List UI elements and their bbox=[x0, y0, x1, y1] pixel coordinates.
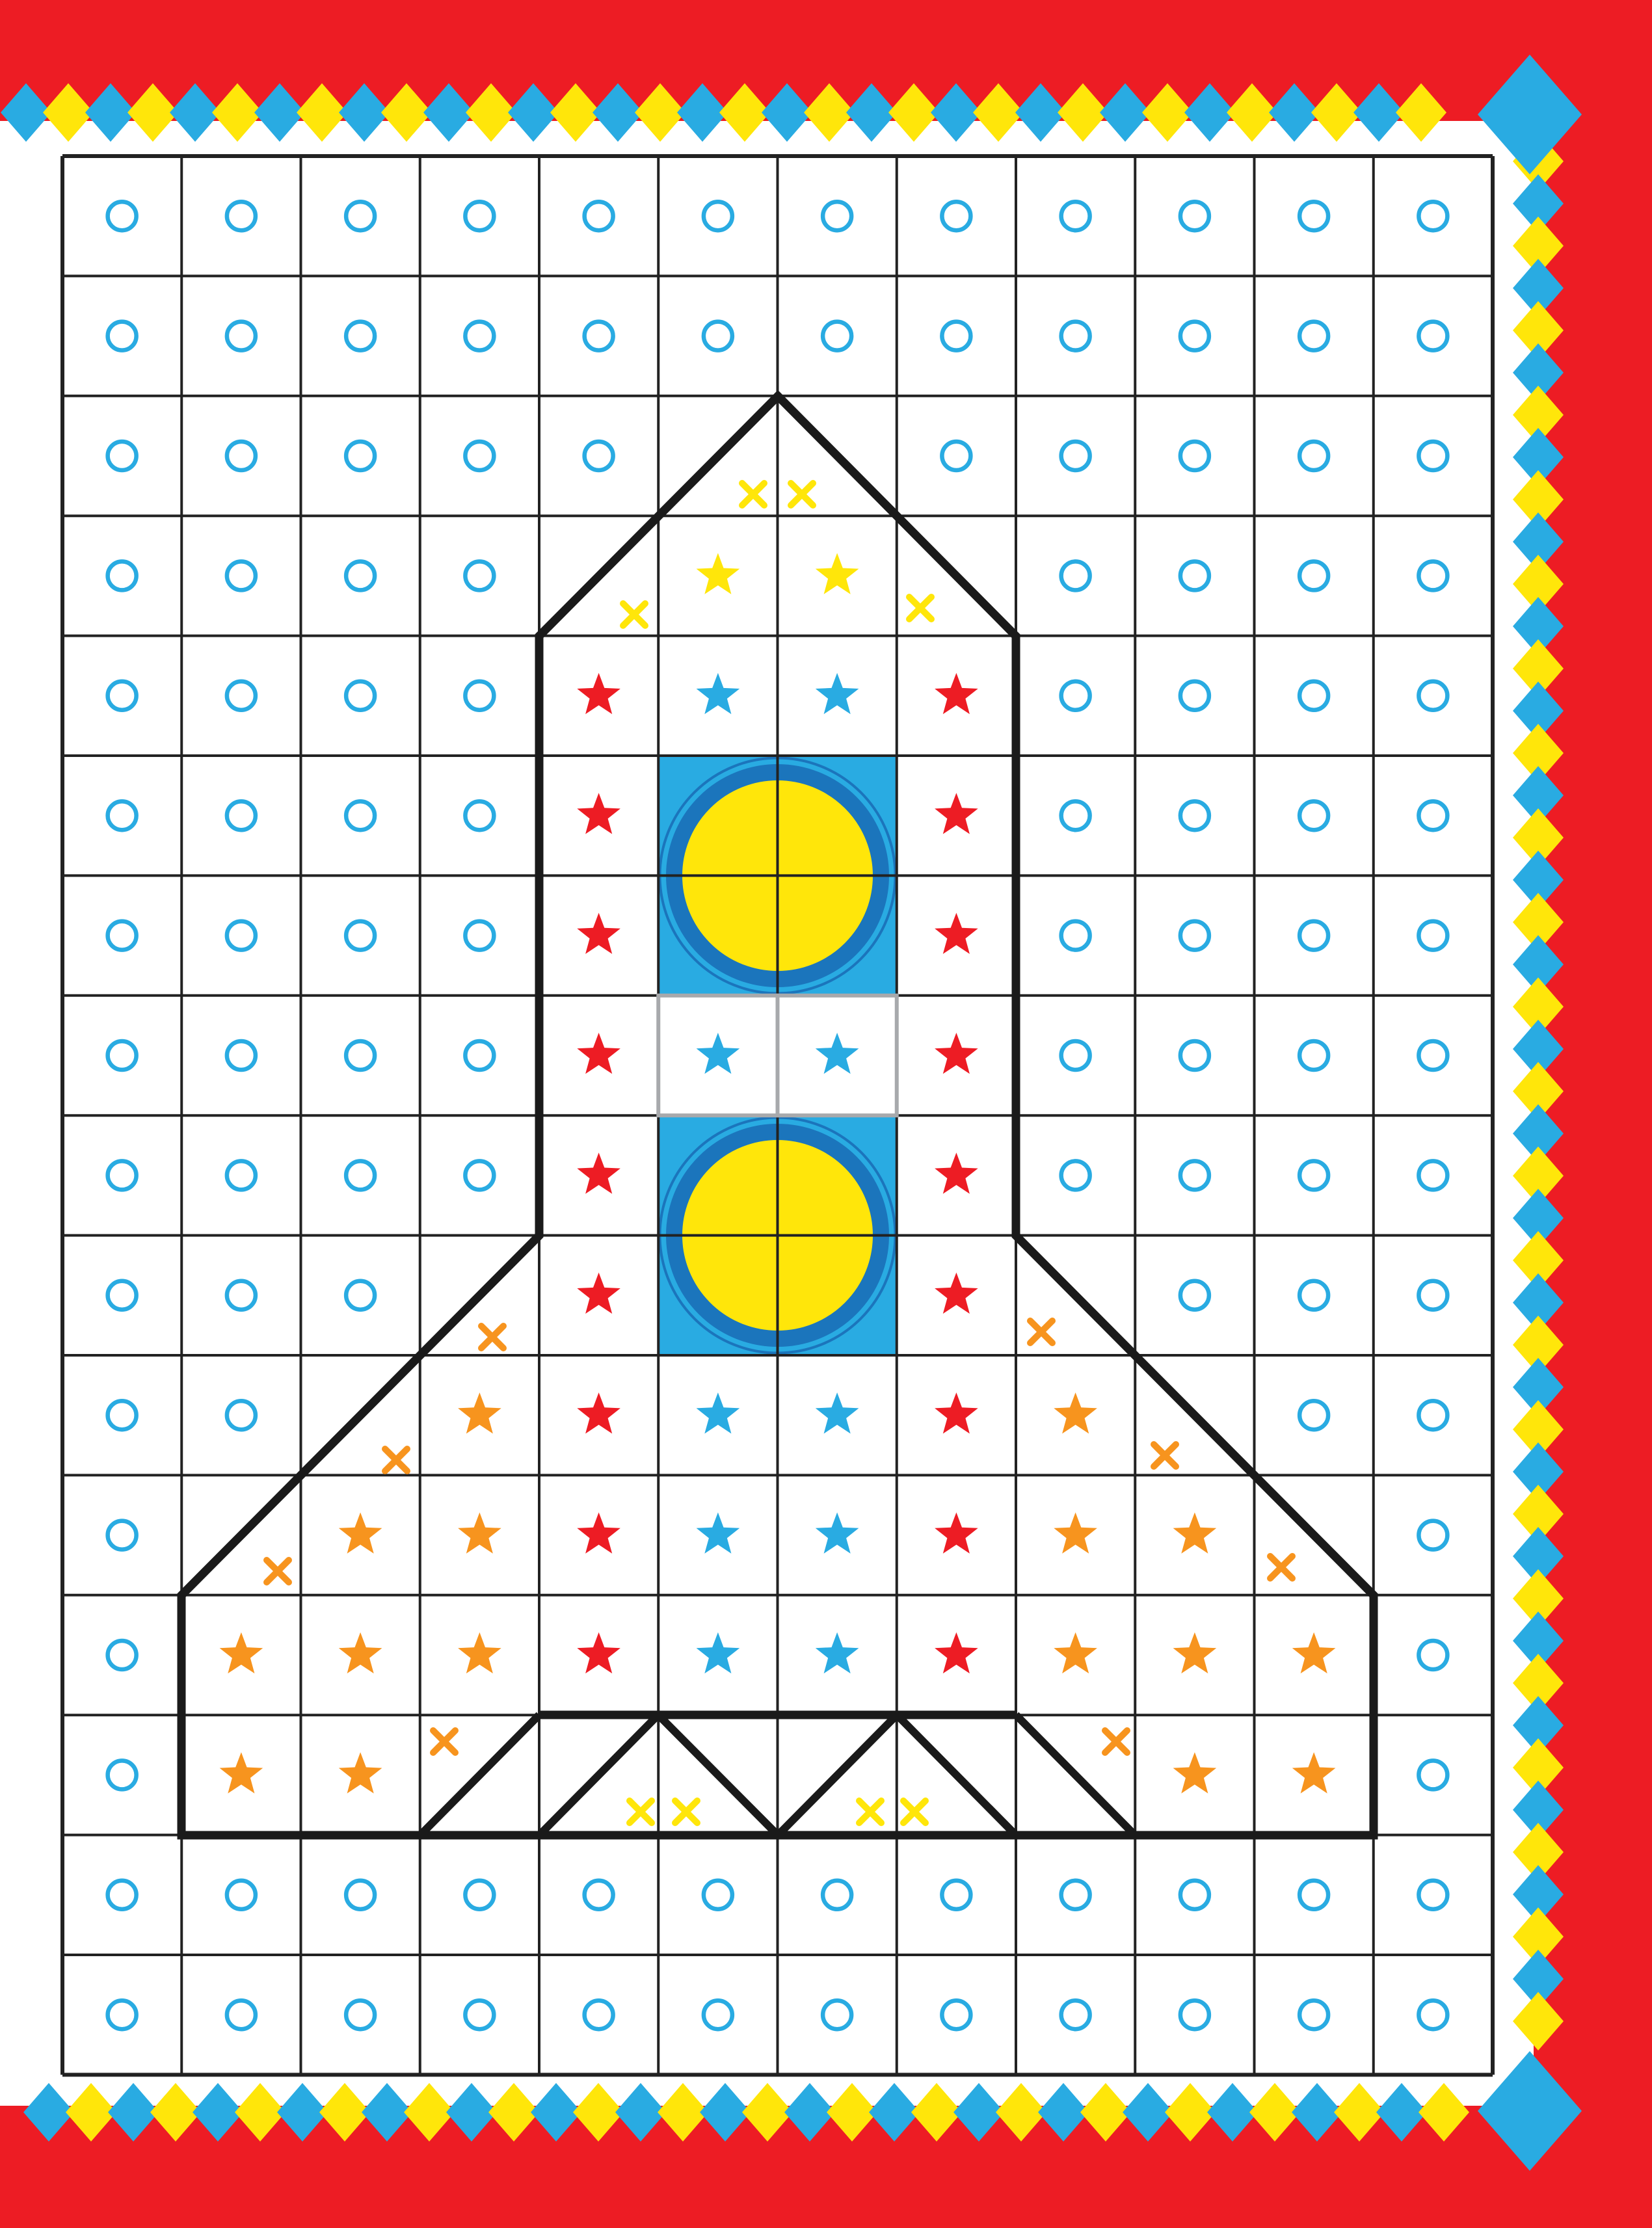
blue-star bbox=[697, 673, 740, 714]
blue-circle-symbol bbox=[704, 1881, 732, 1909]
blue-circle-symbol bbox=[1299, 561, 1328, 590]
orange-star bbox=[1173, 1632, 1217, 1673]
blue-circle-symbol bbox=[227, 2000, 256, 2029]
blue-circle-symbol bbox=[1419, 1521, 1447, 1550]
blue-circle-symbol bbox=[1061, 1161, 1090, 1189]
blue-circle-symbol bbox=[108, 1401, 137, 1429]
blue-circle-symbol bbox=[585, 2000, 613, 2029]
blue-circle-symbol bbox=[1180, 1161, 1209, 1189]
blue-circle-symbol bbox=[1419, 1161, 1447, 1189]
rocket-leg-strut bbox=[1016, 1715, 1135, 1835]
gray-outlined-cells bbox=[658, 996, 897, 1115]
orange-star bbox=[339, 1752, 382, 1793]
blue-circle-symbol bbox=[108, 561, 137, 590]
rocket-leg-strut bbox=[658, 1715, 778, 1835]
red-star bbox=[935, 913, 978, 954]
blue-circle-symbol bbox=[465, 801, 494, 830]
orange-star bbox=[339, 1632, 382, 1673]
red-star bbox=[577, 1392, 620, 1433]
blue-circle-symbol bbox=[346, 1041, 375, 1070]
blue-circle-symbol bbox=[823, 322, 851, 351]
blue-circle-symbol bbox=[1419, 1401, 1447, 1429]
blue-circle-symbol bbox=[465, 1881, 494, 1909]
red-star bbox=[577, 793, 620, 834]
blue-circle-symbol bbox=[585, 1881, 613, 1909]
blue-circle-symbol bbox=[227, 682, 256, 710]
blue-circle-symbol bbox=[346, 442, 375, 470]
blue-circle-symbol bbox=[1180, 682, 1209, 710]
blue-circle-symbol bbox=[346, 2000, 375, 2029]
blue-circle-symbol bbox=[1180, 561, 1209, 590]
blue-circle-symbol bbox=[1061, 922, 1090, 950]
blue-circle-symbol bbox=[1299, 202, 1328, 230]
orange-star bbox=[220, 1632, 263, 1673]
blue-circle-symbol bbox=[1061, 202, 1090, 230]
red-star bbox=[935, 1033, 978, 1074]
blue-circle-symbol bbox=[465, 922, 494, 950]
blue-circle-symbol bbox=[1061, 1041, 1090, 1070]
blue-circle-symbol bbox=[1061, 561, 1090, 590]
blue-circle-symbol bbox=[704, 202, 732, 230]
blue-circle-symbol bbox=[227, 1161, 256, 1189]
blue-circle-symbol bbox=[1299, 322, 1328, 351]
orange-star bbox=[1054, 1392, 1097, 1433]
blue-circle-symbol bbox=[465, 2000, 494, 2029]
blue-circle-symbol bbox=[1419, 2000, 1447, 2029]
blue-circle-symbol bbox=[227, 801, 256, 830]
blue-circle-symbol bbox=[108, 322, 137, 351]
blue-circle-symbol bbox=[1299, 682, 1328, 710]
blue-circle-symbol bbox=[1061, 801, 1090, 830]
blue-circle-symbol bbox=[585, 202, 613, 230]
orange-star bbox=[1054, 1513, 1097, 1554]
blue-circle-symbol bbox=[1299, 1161, 1328, 1189]
yellow-star bbox=[697, 553, 740, 594]
blue-circle-symbol bbox=[346, 682, 375, 710]
blue-star bbox=[697, 1632, 740, 1673]
blue-circle-symbol bbox=[1299, 1401, 1328, 1429]
blue-circle-symbol bbox=[1061, 1881, 1090, 1909]
red-star bbox=[935, 1392, 978, 1433]
orange-star bbox=[1173, 1513, 1217, 1554]
blue-circle-symbol bbox=[942, 2000, 970, 2029]
orange-star bbox=[458, 1392, 501, 1433]
blue-circle-symbol bbox=[942, 442, 970, 470]
rocket-mosaic-drawing bbox=[0, 0, 1652, 2228]
blue-circle-symbol bbox=[465, 202, 494, 230]
blue-star bbox=[816, 673, 859, 714]
blue-circle-symbol bbox=[346, 322, 375, 351]
blue-circle-symbol bbox=[346, 202, 375, 230]
blue-circle-symbol bbox=[1419, 561, 1447, 590]
blue-circle-symbol bbox=[1180, 801, 1209, 830]
blue-circle-symbol bbox=[1180, 202, 1209, 230]
red-star bbox=[577, 1513, 620, 1554]
blue-circle-symbol bbox=[1061, 2000, 1090, 2029]
red-star bbox=[935, 1152, 978, 1193]
blue-circle-symbol bbox=[1419, 1881, 1447, 1909]
red-star bbox=[577, 913, 620, 954]
blue-circle-symbol bbox=[1419, 1641, 1447, 1669]
blue-circle-symbol bbox=[465, 442, 494, 470]
blue-star bbox=[816, 1513, 859, 1554]
blue-star bbox=[816, 1392, 859, 1433]
yellow-star bbox=[816, 553, 859, 594]
blue-circle-symbol bbox=[1180, 1881, 1209, 1909]
red-star bbox=[577, 1033, 620, 1074]
blue-circle-symbol bbox=[1180, 442, 1209, 470]
blue-circle-symbol bbox=[1180, 1041, 1209, 1070]
blue-circle-symbol bbox=[823, 2000, 851, 2029]
blue-circle-symbol bbox=[108, 1281, 137, 1310]
blue-circle-symbol bbox=[108, 202, 137, 230]
blue-star bbox=[697, 1392, 740, 1433]
blue-circle-symbol bbox=[1299, 1281, 1328, 1310]
orange-star bbox=[1173, 1752, 1217, 1793]
blue-circle-symbol bbox=[227, 322, 256, 351]
blue-circle-symbol bbox=[1419, 202, 1447, 230]
blue-circle-symbol bbox=[108, 442, 137, 470]
blue-circle-symbol bbox=[346, 922, 375, 950]
blue-circle-symbol bbox=[1419, 1041, 1447, 1070]
orange-star bbox=[458, 1513, 501, 1554]
orange-star bbox=[339, 1513, 382, 1554]
blue-circle-symbol bbox=[108, 2000, 137, 2029]
blue-circle-symbol bbox=[823, 202, 851, 230]
blue-circle-symbol bbox=[1061, 322, 1090, 351]
blue-circle-symbol bbox=[227, 1881, 256, 1909]
activity-page bbox=[0, 0, 1652, 2228]
blue-circle-symbol bbox=[1299, 1041, 1328, 1070]
blue-star bbox=[697, 1513, 740, 1554]
blue-circle-symbol bbox=[108, 1641, 137, 1669]
blue-circle-symbol bbox=[465, 322, 494, 351]
blue-circle-symbol bbox=[942, 1881, 970, 1909]
blue-circle-symbol bbox=[227, 1281, 256, 1310]
red-star bbox=[577, 1152, 620, 1193]
blue-circle-symbol bbox=[1419, 682, 1447, 710]
blue-circle-symbol bbox=[227, 922, 256, 950]
red-star bbox=[577, 673, 620, 714]
blue-circle-symbol bbox=[227, 202, 256, 230]
red-star bbox=[935, 1632, 978, 1673]
blue-circle-symbol bbox=[465, 1161, 494, 1189]
blue-circle-symbol bbox=[1299, 1881, 1328, 1909]
orange-star bbox=[1292, 1632, 1336, 1673]
blue-circle-symbol bbox=[1419, 322, 1447, 351]
blue-circle-symbol bbox=[465, 1041, 494, 1070]
blue-circle-symbol bbox=[823, 1881, 851, 1909]
blue-circle-symbol bbox=[704, 322, 732, 351]
blue-circle-symbol bbox=[1419, 1281, 1447, 1310]
blue-circle-symbol bbox=[585, 322, 613, 351]
blue-circle-symbol bbox=[346, 1161, 375, 1189]
blue-circle-symbol bbox=[346, 801, 375, 830]
red-star bbox=[935, 1513, 978, 1554]
blue-circle-symbol bbox=[1299, 442, 1328, 470]
blue-circle-symbol bbox=[108, 801, 137, 830]
blue-circle-symbol bbox=[227, 561, 256, 590]
blue-circle-symbol bbox=[346, 1881, 375, 1909]
blue-circle-symbol bbox=[585, 442, 613, 470]
blue-circle-symbol bbox=[227, 1041, 256, 1070]
orange-star bbox=[1054, 1632, 1097, 1673]
blue-circle-symbol bbox=[1419, 922, 1447, 950]
blue-circle-symbol bbox=[346, 1281, 375, 1310]
blue-circle-symbol bbox=[346, 561, 375, 590]
blue-circle-symbol bbox=[1180, 2000, 1209, 2029]
blue-circle-symbol bbox=[1180, 922, 1209, 950]
blue-circle-symbol bbox=[942, 322, 970, 351]
blue-circle-symbol bbox=[1419, 801, 1447, 830]
red-star bbox=[935, 1273, 978, 1314]
blue-circle-symbol bbox=[108, 1760, 137, 1789]
orange-star bbox=[1292, 1752, 1336, 1793]
blue-circle-symbol bbox=[108, 1161, 137, 1189]
blue-star bbox=[816, 1632, 859, 1673]
orange-star bbox=[220, 1752, 263, 1793]
red-star bbox=[577, 1632, 620, 1673]
blue-circle-symbol bbox=[1180, 322, 1209, 351]
rocket-leg-strut bbox=[897, 1715, 1016, 1835]
blue-circle-symbol bbox=[1061, 682, 1090, 710]
red-star bbox=[935, 673, 978, 714]
blue-circle-symbol bbox=[108, 922, 137, 950]
rocket-leg-strut bbox=[539, 1715, 658, 1835]
blue-circle-symbol bbox=[108, 682, 137, 710]
red-star bbox=[935, 793, 978, 834]
blue-circle-symbol bbox=[1061, 442, 1090, 470]
blue-circle-symbol bbox=[1180, 1281, 1209, 1310]
blue-circle-symbol bbox=[1299, 801, 1328, 830]
blue-circle-symbol bbox=[465, 682, 494, 710]
red-star bbox=[577, 1273, 620, 1314]
blue-circle-symbol bbox=[1299, 922, 1328, 950]
orange-star bbox=[458, 1632, 501, 1673]
blue-circle-symbol bbox=[108, 1881, 137, 1909]
blue-circle-symbol bbox=[704, 2000, 732, 2029]
blue-circle-symbol bbox=[465, 561, 494, 590]
blue-circle-symbol bbox=[1299, 2000, 1328, 2029]
blue-circle-symbol bbox=[942, 202, 970, 230]
blue-circle-symbol bbox=[227, 442, 256, 470]
blue-circle-symbol bbox=[1419, 442, 1447, 470]
blue-circle-symbol bbox=[108, 1521, 137, 1550]
blue-circle-symbol bbox=[108, 1041, 137, 1070]
blue-circle-symbol bbox=[227, 1401, 256, 1429]
blue-circle-symbol bbox=[1419, 1760, 1447, 1789]
